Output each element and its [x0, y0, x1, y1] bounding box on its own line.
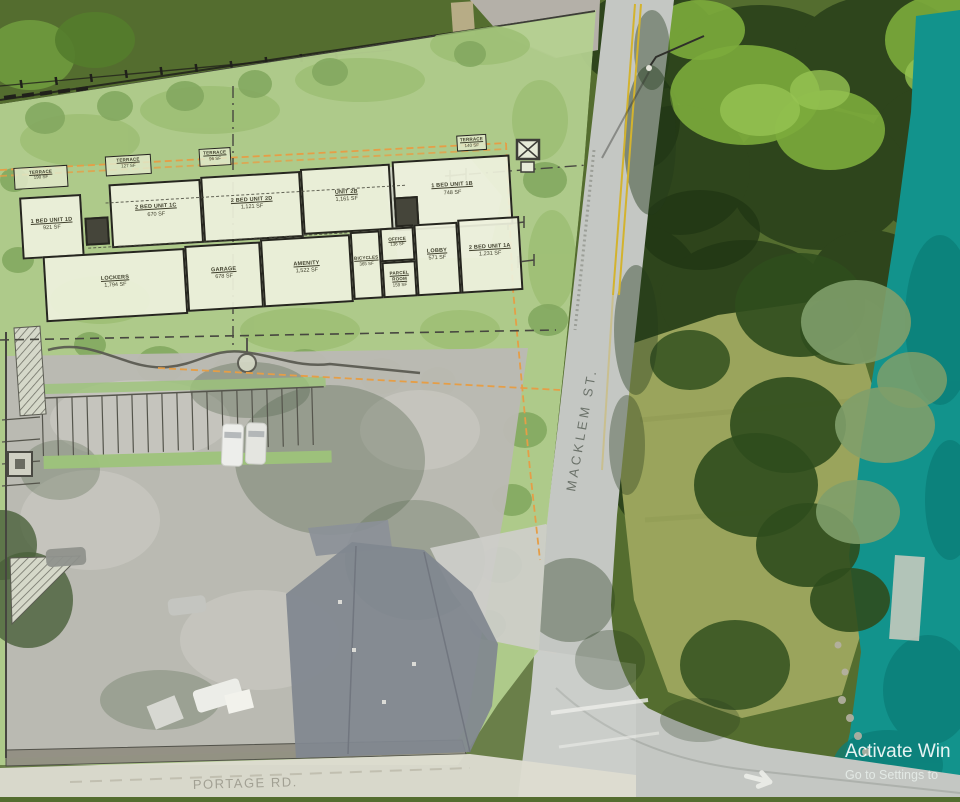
- proposed-building-floor-plan: TERRACE190 SF TERRACE127 SF TERRACE96 SF…: [12, 116, 526, 326]
- unit-room: 2 BED UNIT 2D1,121 SF: [200, 171, 304, 243]
- shore-steps: [889, 555, 925, 641]
- terrace: TERRACE96 SF: [199, 147, 232, 167]
- unit-room: LOCKERS1,794 SF: [43, 248, 189, 322]
- activate-windows-watermark: Activate Win: [845, 741, 951, 763]
- unit-room: GARAGE678 SF: [184, 241, 264, 311]
- unit-room: PARCEL ROOM159 SF: [382, 260, 418, 298]
- terrace-area: 127 SF: [106, 162, 150, 170]
- unit-room: AMENITY1,522 SF: [260, 234, 354, 307]
- unit-room: UNIT 2B1,161 SF: [300, 164, 394, 235]
- unit-room: OFFICE136 SF: [380, 226, 416, 262]
- terrace: TERRACE127 SF: [105, 154, 152, 177]
- room-area: 571 SF: [417, 254, 457, 264]
- room-area: 159 SF: [385, 281, 415, 289]
- terrace: TERRACE140 SF: [456, 134, 487, 152]
- unit-room: 1 BED UNIT 1D921 SF: [19, 194, 85, 260]
- unit-room: BICYCLES365 SF: [350, 230, 384, 300]
- aerial-site-plan-screenshot: { "plan": { "streets": { "macklem": "MAC…: [0, 0, 960, 797]
- activate-windows-subtext: Go to Settings to: [845, 768, 938, 782]
- room-area: 136 SF: [382, 241, 412, 249]
- unit-room: 2 BED UNIT 1A1,231 SF: [457, 216, 523, 294]
- stairwell: [84, 216, 110, 245]
- stairwell: [394, 196, 420, 227]
- unit-room: LOBBY571 SF: [413, 222, 461, 296]
- unit-room: 2 BED UNIT 1C670 SF: [108, 179, 204, 248]
- terrace: TERRACE190 SF: [13, 165, 68, 190]
